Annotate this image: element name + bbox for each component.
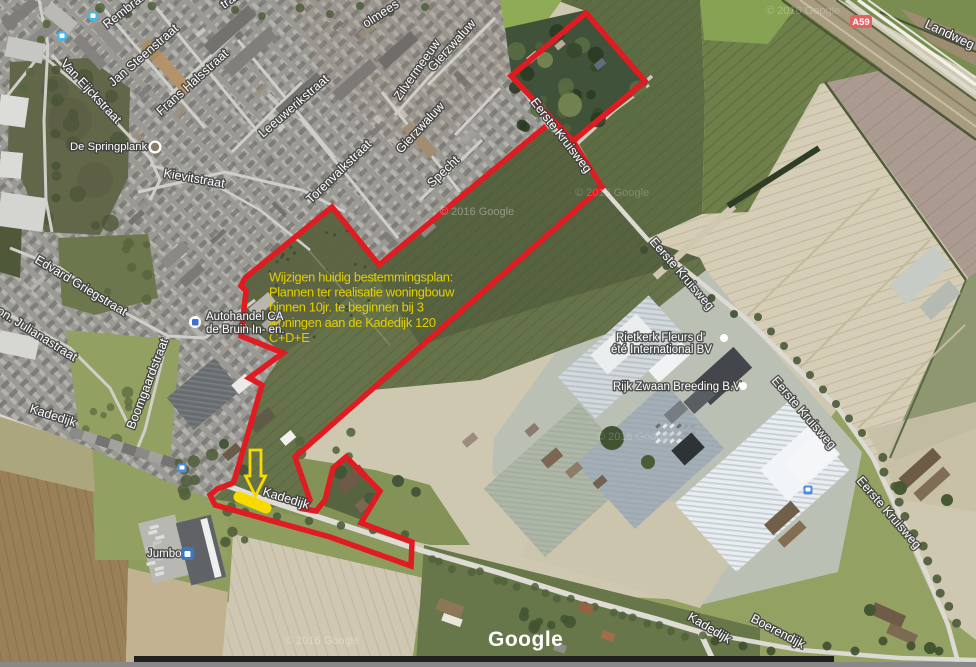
svg-text:© 2016 Google: © 2016 Google bbox=[440, 206, 514, 218]
svg-text:binnen 10jr. te beginnen bij 3: binnen 10jr. te beginnen bij 3 bbox=[269, 300, 424, 315]
svg-text:© 2016 Google: © 2016 Google bbox=[766, 5, 840, 17]
svg-text:Rietkerk Fleurs d': Rietkerk Fleurs d' bbox=[616, 332, 705, 344]
svg-text:Plannen ter realisatie woningb: Plannen ter realisatie woningbouw bbox=[269, 285, 455, 300]
svg-text:été International BV: été International BV bbox=[611, 344, 712, 356]
svg-text:Google: Google bbox=[488, 628, 563, 651]
svg-text:de Bruin In- en.: de Bruin In- en. bbox=[206, 324, 285, 336]
svg-text:Autohandel CA: Autohandel CA bbox=[206, 311, 284, 323]
svg-text:Wijzigen huidig bestemmingspla: Wijzigen huidig bestemmingsplan: bbox=[269, 270, 453, 285]
svg-text:© 2016 Google: © 2016 Google bbox=[285, 635, 359, 647]
svg-text:© 2016 Google: © 2016 Google bbox=[597, 431, 671, 443]
svg-text:© 2016 Google: © 2016 Google bbox=[575, 187, 649, 199]
svg-text:woningen aan de Kadedijk 120: woningen aan de Kadedijk 120 bbox=[268, 315, 436, 330]
svg-text:A59: A59 bbox=[852, 17, 869, 28]
svg-text:Rijk Zwaan Breeding B.V: Rijk Zwaan Breeding B.V bbox=[613, 381, 741, 393]
svg-text:De Springplank: De Springplank bbox=[70, 141, 148, 153]
svg-text:Jumbo: Jumbo bbox=[147, 548, 182, 560]
